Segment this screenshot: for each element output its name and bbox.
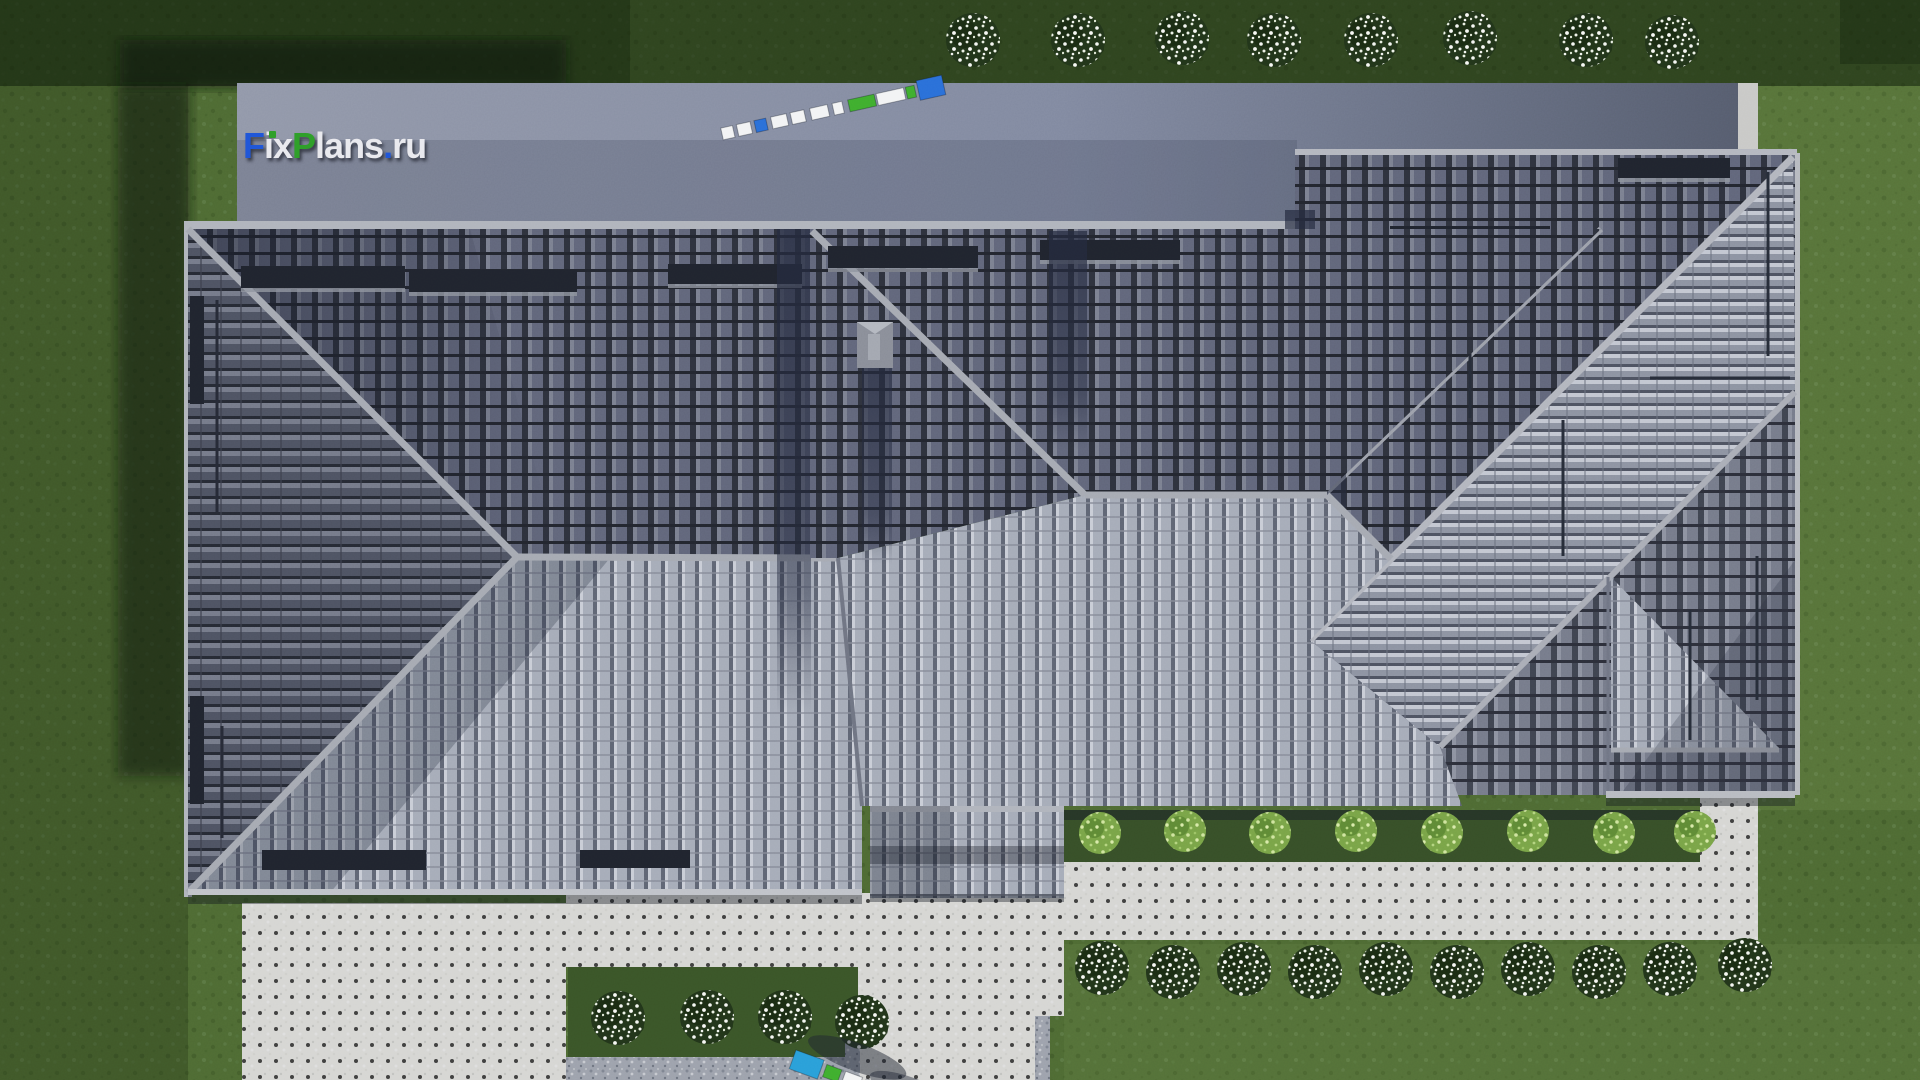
logo-letter: P: [292, 125, 315, 166]
logo-letter: F: [243, 125, 264, 166]
logo-letter: .: [383, 125, 392, 166]
logo-letter: lans: [315, 125, 383, 166]
logo-i-dot: [269, 131, 276, 138]
render-canvas: FixPlans.ru: [0, 0, 1920, 1080]
logo-letter: ru: [392, 125, 426, 166]
fixplans-logo: FixPlans.ru: [243, 128, 426, 164]
